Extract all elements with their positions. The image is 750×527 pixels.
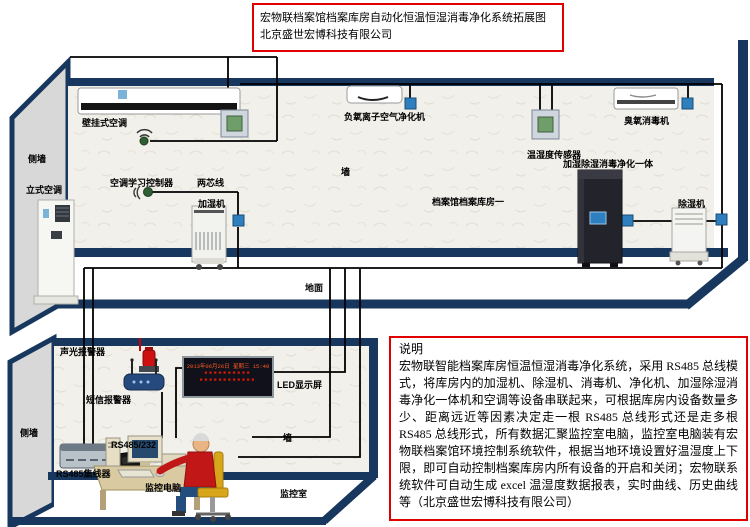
- rs485-connector: [622, 215, 633, 226]
- monitor-right-wall-band: [369, 338, 378, 478]
- label-led-screen: LED显示屏: [277, 378, 322, 391]
- chair-seat: [198, 488, 228, 497]
- label-ozone-sterilizer: 臭氧消毒机: [624, 114, 669, 127]
- all-in-one-cabinet: [578, 170, 622, 267]
- rs485-connector: [716, 214, 727, 225]
- note-body: 宏物联智能档案库房恒温恒湿消毒净化系统，采用 RS485 总线模式，将库房内的加…: [399, 358, 738, 511]
- led-display: 2013年06月26日 星期三 15:40 ■■■■■■■■■■ ■■■■■■■…: [182, 356, 274, 398]
- temp-humidity-sensor-2: [532, 110, 559, 139]
- label-rs485-232: RS485/232: [111, 440, 156, 450]
- label-monitor-room-name: 监控室: [280, 487, 307, 500]
- label-two-core-wire: 两芯线: [197, 176, 224, 189]
- label-archive-room-name: 档案馆档案库房一: [432, 195, 504, 208]
- title-line-2: 北京盛世宏博科技有限公司: [260, 27, 556, 44]
- title-line-1: 宏物联档案馆档案库房自动化恒温恒湿消毒净化系统拓展图: [260, 10, 556, 27]
- label-monitor-pc: 监控电脑: [145, 481, 181, 494]
- rs485-connector: [233, 215, 244, 226]
- ac-signal-node: [140, 137, 148, 145]
- note-heading: 说明: [399, 341, 738, 358]
- label-floor-ac: 立式空调: [26, 183, 62, 196]
- archive-wall-floor-band: [58, 248, 728, 257]
- label-all-in-one: 加湿除湿消毒净化一体: [563, 157, 653, 170]
- rs485-connector: [682, 98, 693, 109]
- archive-floor: [58, 257, 744, 300]
- ozone-sterilizer-device: [614, 88, 678, 109]
- rs485-connector: [405, 98, 416, 109]
- label-neg-ion-purifier: 负氧离子空气净化机: [344, 110, 425, 123]
- label-dehumidifier: 除湿机: [678, 197, 705, 210]
- label-ac-learn-controller: 空调学习控制器: [110, 176, 173, 189]
- led-line-2: ■■■■■■■■■■: [184, 370, 272, 377]
- label-sound-light-alarm: 声光报警器: [60, 345, 105, 358]
- label-archive-wall: 墙: [341, 165, 350, 178]
- wall-ac-unit: [78, 88, 240, 114]
- label-wall-ac: 壁挂式空调: [82, 116, 127, 129]
- dehumidifier-device: [670, 208, 708, 266]
- label-rs485-hub: RS485集线器: [56, 467, 111, 480]
- topology-diagram: 宏物联档案馆档案库房自动化恒温恒湿消毒净化系统拓展图 北京盛世宏博科技有限公司 …: [0, 0, 750, 527]
- label-monitor-wall: 墙: [283, 431, 292, 444]
- label-humidifier: 加湿机: [198, 197, 225, 210]
- humidifier-device: [192, 206, 226, 270]
- note-box: 说明 宏物联智能档案库房恒温恒湿消毒净化系统，采用 RS485 总线模式，将库房…: [389, 336, 748, 521]
- label-sms-alarm: 短信报警器: [86, 393, 131, 406]
- floor-ac-unit: [34, 200, 78, 304]
- archive-right-wall-band: [738, 40, 748, 261]
- label-archive-floor: 地面: [305, 281, 323, 294]
- temp-humidity-sensor-1: [221, 110, 248, 137]
- label-archive-side-wall: 侧墙: [28, 152, 46, 165]
- keyboard: [118, 470, 154, 477]
- label-monitor-side-wall: 侧墙: [20, 426, 38, 439]
- led-line-3: ■■■■■■■■■■■■: [184, 377, 272, 384]
- title-box: 宏物联档案馆档案库房自动化恒温恒湿消毒净化系统拓展图 北京盛世宏博科技有限公司: [252, 3, 564, 52]
- led-line-1: 2013年06月26日 星期三 15:40: [184, 362, 272, 370]
- neg-ion-purifier-device: [347, 86, 402, 103]
